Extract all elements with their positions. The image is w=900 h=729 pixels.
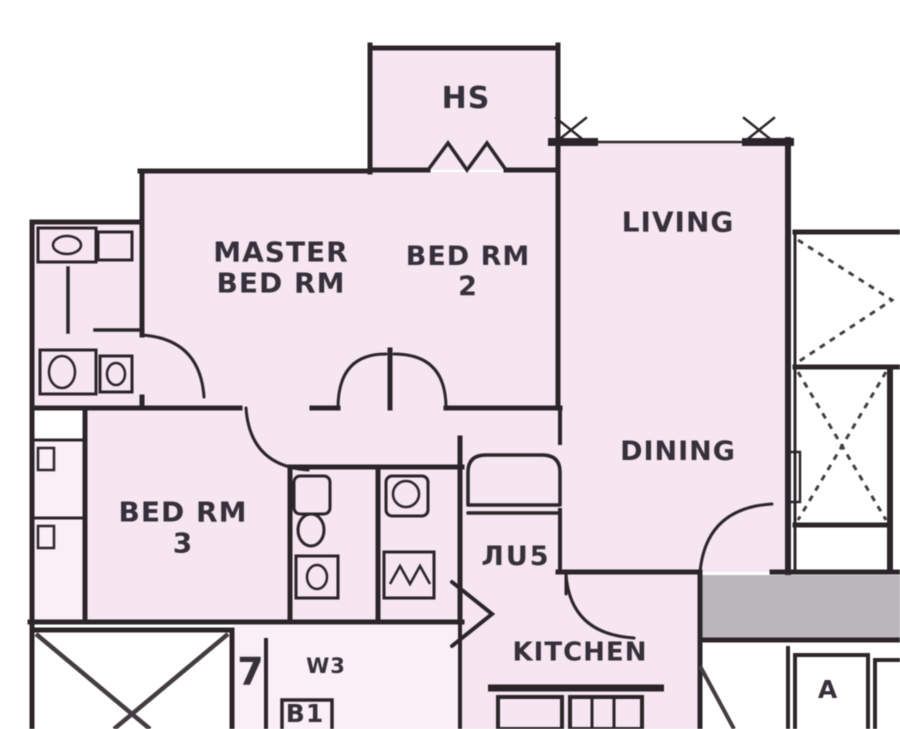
bedroom-3-line1: BED RM — [119, 497, 248, 528]
marker-b1: B1 — [286, 700, 324, 728]
floor-plan: HS MASTER BED RM BED RM 2 LIVING DINING … — [0, 0, 900, 729]
walls-bottom-right-boxes — [788, 648, 900, 729]
bedroom-3-line2: 3 — [119, 528, 248, 559]
room-label-dining: DINING — [620, 437, 736, 467]
marker-7: 7 — [237, 651, 264, 694]
room-label-master-bedroom: MASTER BED RM — [213, 237, 349, 300]
walls-shaft-horiz — [795, 232, 900, 525]
window-ledge-area — [32, 440, 85, 622]
room-fills — [32, 47, 900, 729]
marker-utility: ЛU5 — [481, 542, 550, 572]
room-label-bedroom-3: BED RM 3 — [119, 497, 248, 560]
master-bath-area — [32, 222, 142, 408]
corridor-area — [700, 575, 900, 638]
bedroom-2-line1: BED RM — [406, 242, 531, 272]
bedroom-2-line2: 2 — [406, 272, 531, 302]
room-label-bedroom-2: BED RM 2 — [406, 242, 531, 302]
corridor-diagonal — [700, 666, 734, 729]
room-label-kitchen: KITCHEN — [513, 638, 648, 667]
master-bedroom-line2: BED RM — [213, 268, 349, 299]
master-bedroom-line1: MASTER — [213, 237, 349, 268]
shaft-dashed-chevron — [798, 240, 892, 362]
stair-v-lines — [36, 634, 228, 729]
room-label-living: LIVING — [622, 206, 735, 237]
windows — [552, 118, 790, 142]
shaft-dashed-x — [798, 372, 886, 520]
marker-a: A — [818, 676, 838, 704]
room-label-household-shelter: HS — [442, 82, 491, 116]
marker-w3: W3 — [306, 655, 346, 679]
